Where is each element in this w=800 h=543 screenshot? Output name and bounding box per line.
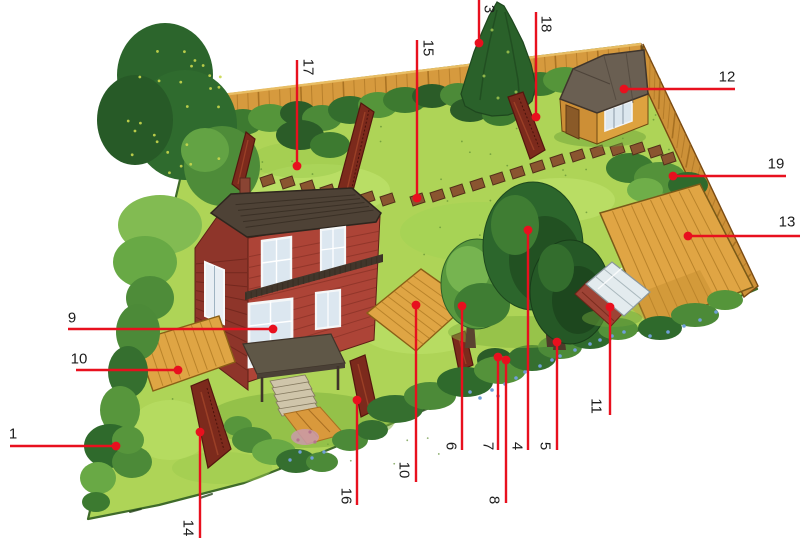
- callout-number-3: 3: [482, 5, 497, 13]
- callout-number-11: 11: [589, 398, 604, 414]
- callout-dot-18: [532, 113, 541, 122]
- callout-number-13: 13: [779, 215, 796, 230]
- callout-number-1: 1: [9, 427, 17, 442]
- callout-dot-13: [684, 232, 693, 241]
- callout-dot-5: [553, 338, 562, 347]
- callout-dot-16: [353, 396, 362, 405]
- callout-dot-11: [606, 303, 615, 312]
- callout-number-5: 5: [538, 442, 553, 450]
- callout-number-15: 15: [421, 40, 436, 57]
- callout-dot-9: [269, 325, 278, 334]
- callout-dot-15: [413, 194, 422, 203]
- callout-dot-10: [174, 366, 183, 375]
- callout-number-19: 19: [768, 157, 785, 172]
- callout-number-12: 12: [719, 70, 736, 85]
- callout-number-17: 17: [301, 59, 316, 76]
- callout-dot-6: [458, 302, 467, 311]
- callout-number-9: 9: [68, 311, 76, 326]
- callout-dot-10: [412, 301, 421, 310]
- callout-number-18: 18: [539, 16, 554, 33]
- callout-number-6: 6: [444, 442, 459, 450]
- callout-dot-3: [475, 39, 484, 48]
- callout-number-10: 10: [397, 462, 412, 479]
- callout-dot-12: [620, 85, 629, 94]
- callout-dot-8: [502, 356, 511, 365]
- callout-dot-4: [524, 226, 533, 235]
- callout-dot-17: [293, 162, 302, 171]
- shed-door: [566, 105, 579, 139]
- callout-number-7: 7: [481, 442, 496, 450]
- callout-dot-14: [196, 428, 205, 437]
- callout-number-14: 14: [181, 520, 196, 537]
- callout-dot-19: [669, 172, 678, 181]
- garden-plan-figure: 134567891010111213141516171819: [0, 0, 800, 543]
- callout-number-10: 10: [71, 352, 88, 367]
- callout-number-4: 4: [510, 442, 525, 450]
- callout-dot-7: [494, 353, 503, 362]
- callout-number-16: 16: [339, 488, 354, 505]
- callout-dot-1: [112, 442, 121, 451]
- callout-number-8: 8: [487, 496, 502, 504]
